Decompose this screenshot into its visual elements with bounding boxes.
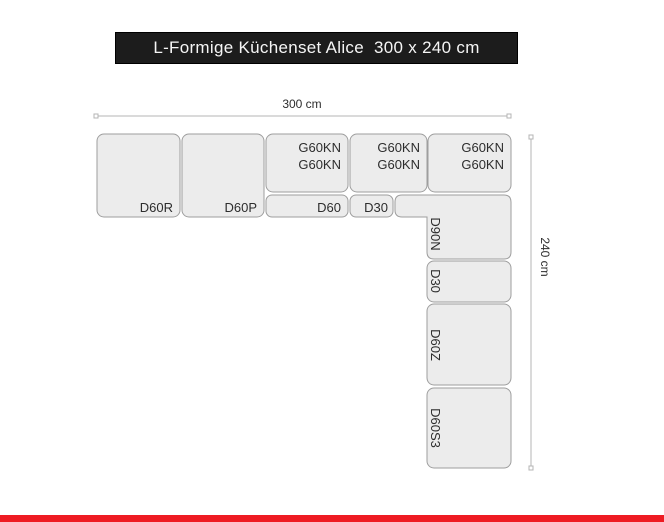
cabinet-box-d90n — [395, 195, 511, 259]
dimension-width-endpoint-left — [94, 114, 98, 118]
kitchen-layout-diagram: 300 cm 240 cm D60R D60P G60KN G60KN — [0, 0, 664, 522]
cabinet-label-g60kn-2a: G60KN — [377, 140, 420, 155]
cabinet-label-g60kn-1a: G60KN — [298, 140, 341, 155]
cabinet-d60: D60 — [266, 195, 348, 217]
cabinet-label-g60kn-3a: G60KN — [461, 140, 504, 155]
cabinet-label-d60r: D60R — [140, 200, 173, 215]
cabinet-d90n: D90N — [395, 195, 511, 259]
cabinet-g60kn-1: G60KN G60KN — [266, 134, 348, 192]
cabinet-d60s3: D60S3 — [427, 388, 511, 468]
dimension-height-endpoint-top — [529, 135, 533, 139]
dimension-height: 240 cm — [529, 135, 552, 470]
dimension-width-endpoint-right — [507, 114, 511, 118]
cabinet-label-d60z: D60Z — [428, 329, 443, 361]
cabinet-label-d60s3: D60S3 — [428, 408, 443, 448]
cabinet-d60p: D60P — [182, 134, 264, 217]
dimension-width-label: 300 cm — [282, 97, 321, 111]
cabinet-d60r: D60R — [97, 134, 180, 217]
dimension-height-endpoint-bottom — [529, 466, 533, 470]
cabinet-d30-base: D30 — [350, 195, 393, 217]
cabinet-g60kn-3: G60KN G60KN — [428, 134, 511, 192]
cabinet-label-d30-base: D30 — [364, 200, 388, 215]
cabinet-label-g60kn-1b: G60KN — [298, 157, 341, 172]
cabinet-g60kn-2: G60KN G60KN — [350, 134, 427, 192]
cabinet-label-g60kn-2b: G60KN — [377, 157, 420, 172]
cabinet-label-g60kn-3b: G60KN — [461, 157, 504, 172]
bottom-accent-bar — [0, 515, 664, 522]
dimension-width: 300 cm — [94, 97, 511, 118]
dimension-height-label: 240 cm — [538, 237, 552, 276]
cabinet-label-d60p: D60P — [224, 200, 257, 215]
cabinet-label-d60: D60 — [317, 200, 341, 215]
cabinet-label-d30-right: D30 — [428, 269, 443, 293]
cabinet-d60z: D60Z — [427, 304, 511, 385]
kitchen-layout-page: L-Formige Küchenset Alice 300 x 240 cm 3… — [0, 0, 664, 522]
cabinet-d30-right: D30 — [427, 261, 511, 302]
cabinet-label-d90n: D90N — [428, 217, 443, 250]
